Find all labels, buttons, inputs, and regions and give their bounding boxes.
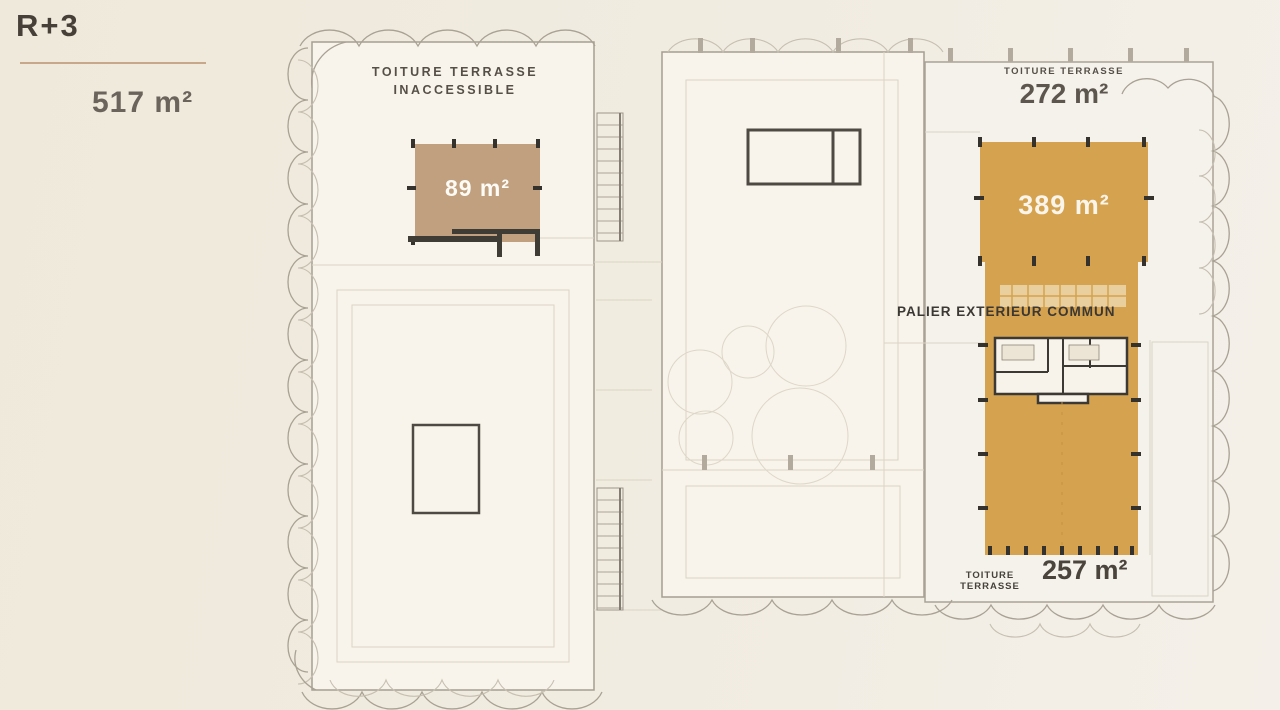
left-roof-area: 89 m² [415, 175, 540, 202]
roof-hatch [413, 425, 479, 513]
left-roof-label-line1: TOITURE TERRASSE [330, 65, 580, 79]
palier-label: PALIER EXTERIEUR COMMUN [897, 304, 1116, 319]
right-top-roof-area: 272 m² [975, 78, 1153, 110]
floor-plan-page: R+3 517 m² TOITURE TERRASSE INACCESSIBLE… [0, 0, 1280, 710]
stair-core [995, 338, 1127, 403]
title-underline [20, 62, 206, 64]
right-main-terrace-area: 389 m² [980, 190, 1148, 221]
bottom-roof-label: TOITURE TERRASSE [940, 570, 1040, 592]
right-top-roof-label: TOITURE TERRASSE [975, 66, 1153, 77]
bottom-roof-area: 257 m² [1042, 555, 1128, 586]
left-roof-label-line2: INACCESSIBLE [330, 83, 580, 97]
level-title: R+3 [16, 8, 80, 44]
exterior-stair-connector [597, 113, 623, 610]
total-area: 517 m² [92, 86, 193, 120]
